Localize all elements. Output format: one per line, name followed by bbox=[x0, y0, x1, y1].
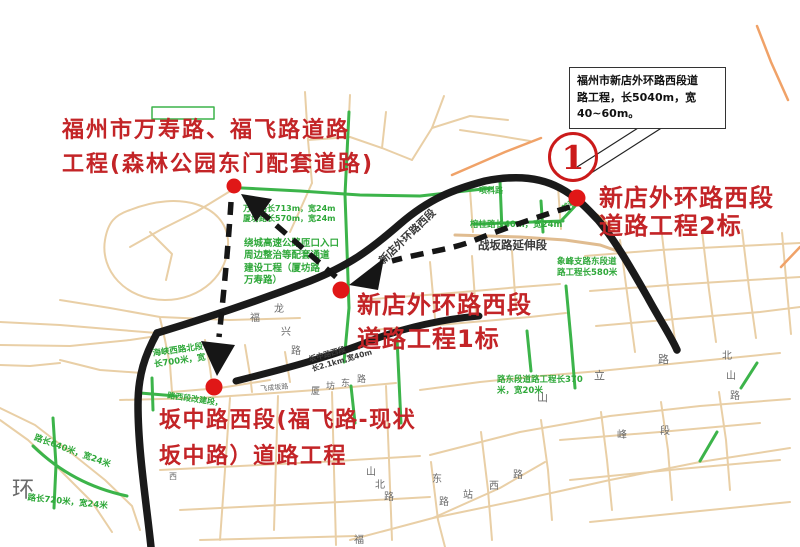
marker-dot-seg1 bbox=[333, 282, 350, 299]
marker-dot-banzhong bbox=[206, 379, 223, 396]
route-seg2-to-seg1 bbox=[392, 207, 570, 261]
map-canvas: 新店外环路西段战坂路延伸段坂中路西段 长2.1km,宽40m万寿路长713m，宽… bbox=[0, 0, 800, 547]
route-arrowheads bbox=[201, 194, 384, 376]
route-wanshou-to-banzhong bbox=[219, 202, 231, 337]
marker-dot-seg2 bbox=[569, 190, 586, 207]
marker-dot-wanshou bbox=[227, 179, 242, 194]
route-overlay-svg bbox=[0, 0, 800, 547]
arrowhead-to-banzhong-dot bbox=[201, 341, 235, 376]
arrowhead-to-seg1-dot bbox=[349, 258, 384, 290]
dashed-route-arrows bbox=[219, 202, 570, 337]
route-seg1-to-wanshou bbox=[262, 213, 336, 277]
